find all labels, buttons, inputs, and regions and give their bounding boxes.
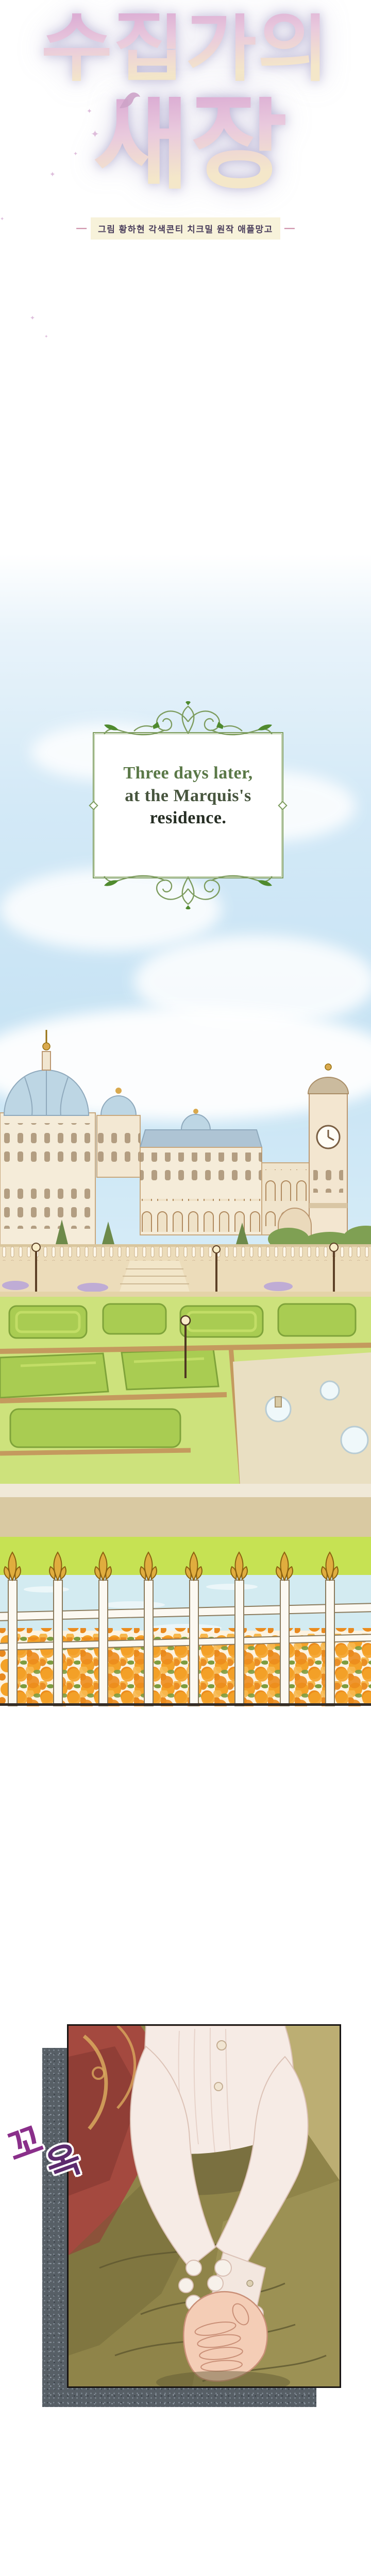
gravel-path: [0, 1497, 371, 1538]
title-line-1: 수집가의: [0, 13, 371, 83]
stone-edge: [0, 1484, 371, 1497]
scene-caption-line: Three days later,: [94, 762, 282, 785]
scene-caption-line: residence.: [94, 807, 282, 829]
credits-text: 그림 황하현 각색콘티 치크밀 원작 애플망고: [91, 217, 280, 240]
palace-scene-panel: Three days later, at the Marquis's resid…: [0, 554, 371, 1706]
palace-terrace: [0, 1243, 371, 1292]
scene-caption-text: Three days later, at the Marquis's resid…: [94, 762, 282, 829]
sparkle-icon: ✦: [49, 170, 56, 179]
sparkle-icon: ✦: [87, 107, 92, 115]
hands-illustration: [69, 2026, 340, 2386]
scene-caption-box: Three days later, at the Marquis's resid…: [93, 732, 283, 878]
estate-fence: [0, 1552, 371, 1706]
credit-dash-left: —: [76, 223, 87, 234]
palace-illustration: [0, 1018, 371, 1706]
bird-icon: [116, 91, 143, 110]
vine-flourish-icon: [103, 873, 273, 909]
title-line-2: 새장: [36, 97, 345, 192]
sparkle-icon: ✦: [30, 314, 35, 321]
panel-border-line: [0, 1703, 371, 1706]
credits-bar: — 그림 황하현 각색콘티 치크밀 원작 애플망고 —: [0, 217, 371, 240]
hands-panel: [67, 2024, 341, 2388]
sparkle-icon: ✦: [44, 334, 48, 340]
garden-parterre: [0, 1292, 371, 1487]
sparkle-icon: ✦: [73, 150, 78, 157]
palace-left-domes: [0, 1030, 140, 1247]
scene-caption-line: at the Marquis's: [94, 785, 282, 807]
sparkle-icon: ✦: [91, 128, 99, 141]
webtoon-page: 수집가의 새장 ✦ ✦ ✦ ✦ ✦ ✦ ✦ — 그림 황하현 각색콘티 치크밀 …: [0, 0, 371, 2576]
credit-dash-right: —: [284, 223, 295, 234]
vine-flourish-icon: [103, 701, 273, 737]
clock-tower: [278, 1064, 348, 1241]
